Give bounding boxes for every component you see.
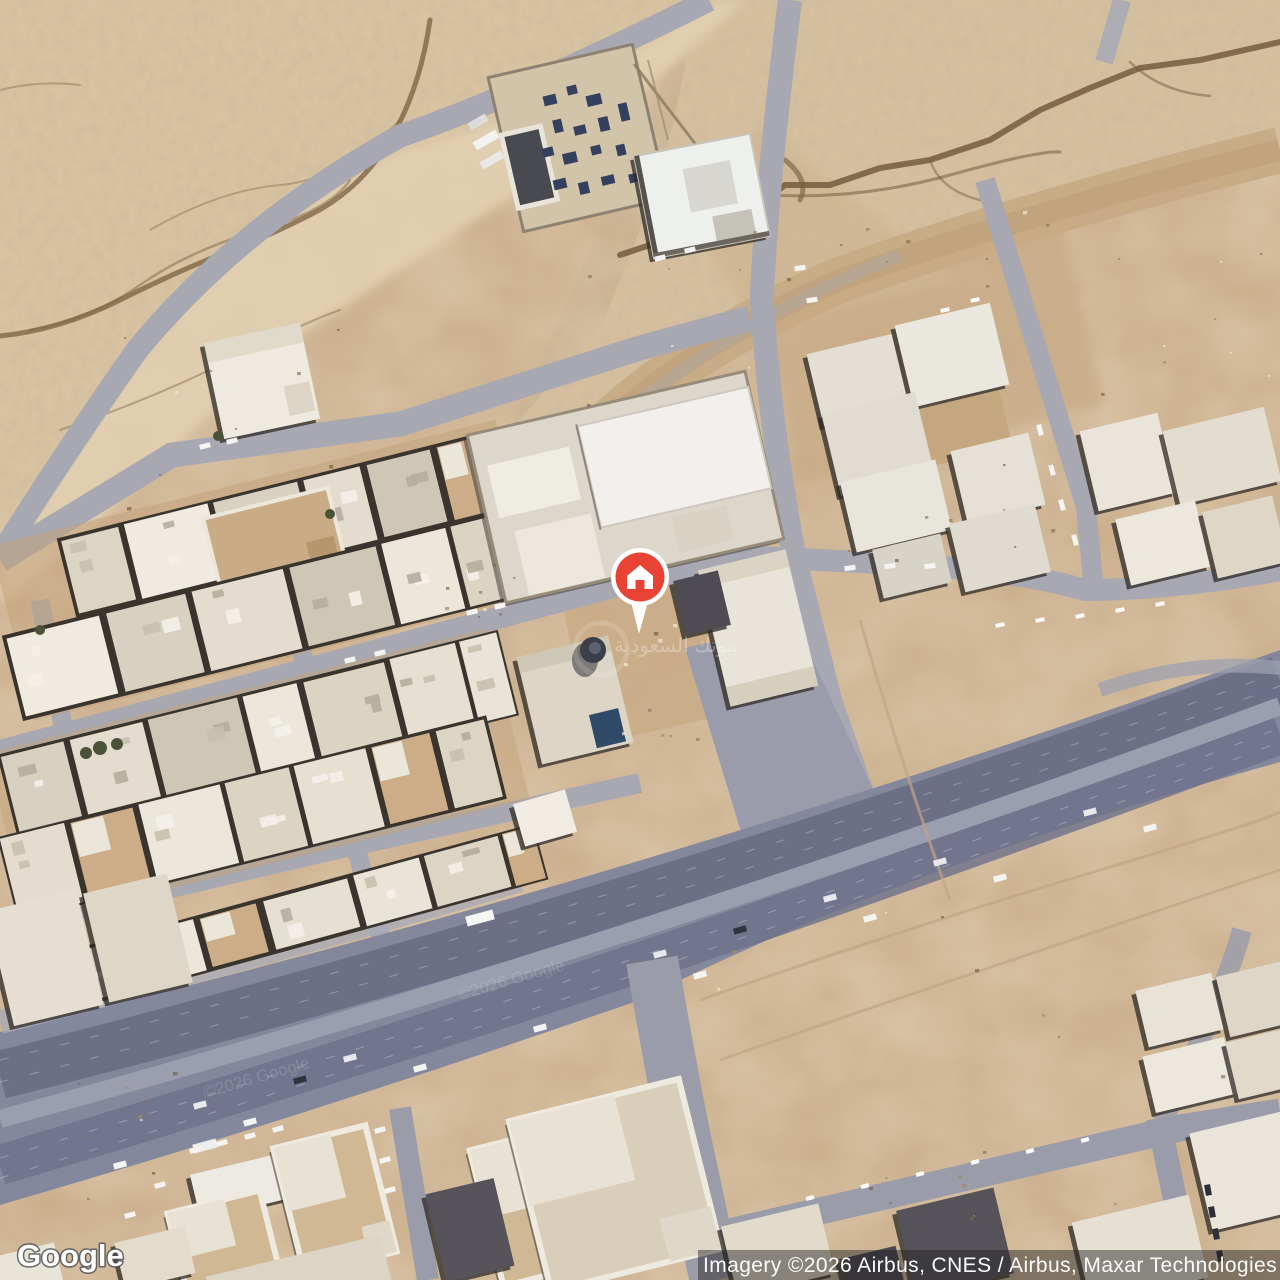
svg-text:Imagery ©2026 Airbus, CNES / A: Imagery ©2026 Airbus, CNES / Airbus, Max… bbox=[703, 1254, 1277, 1277]
svg-text:Google: Google bbox=[17, 1238, 124, 1273]
svg-text:بيوتك السعودية: بيوتك السعودية bbox=[614, 635, 739, 657]
